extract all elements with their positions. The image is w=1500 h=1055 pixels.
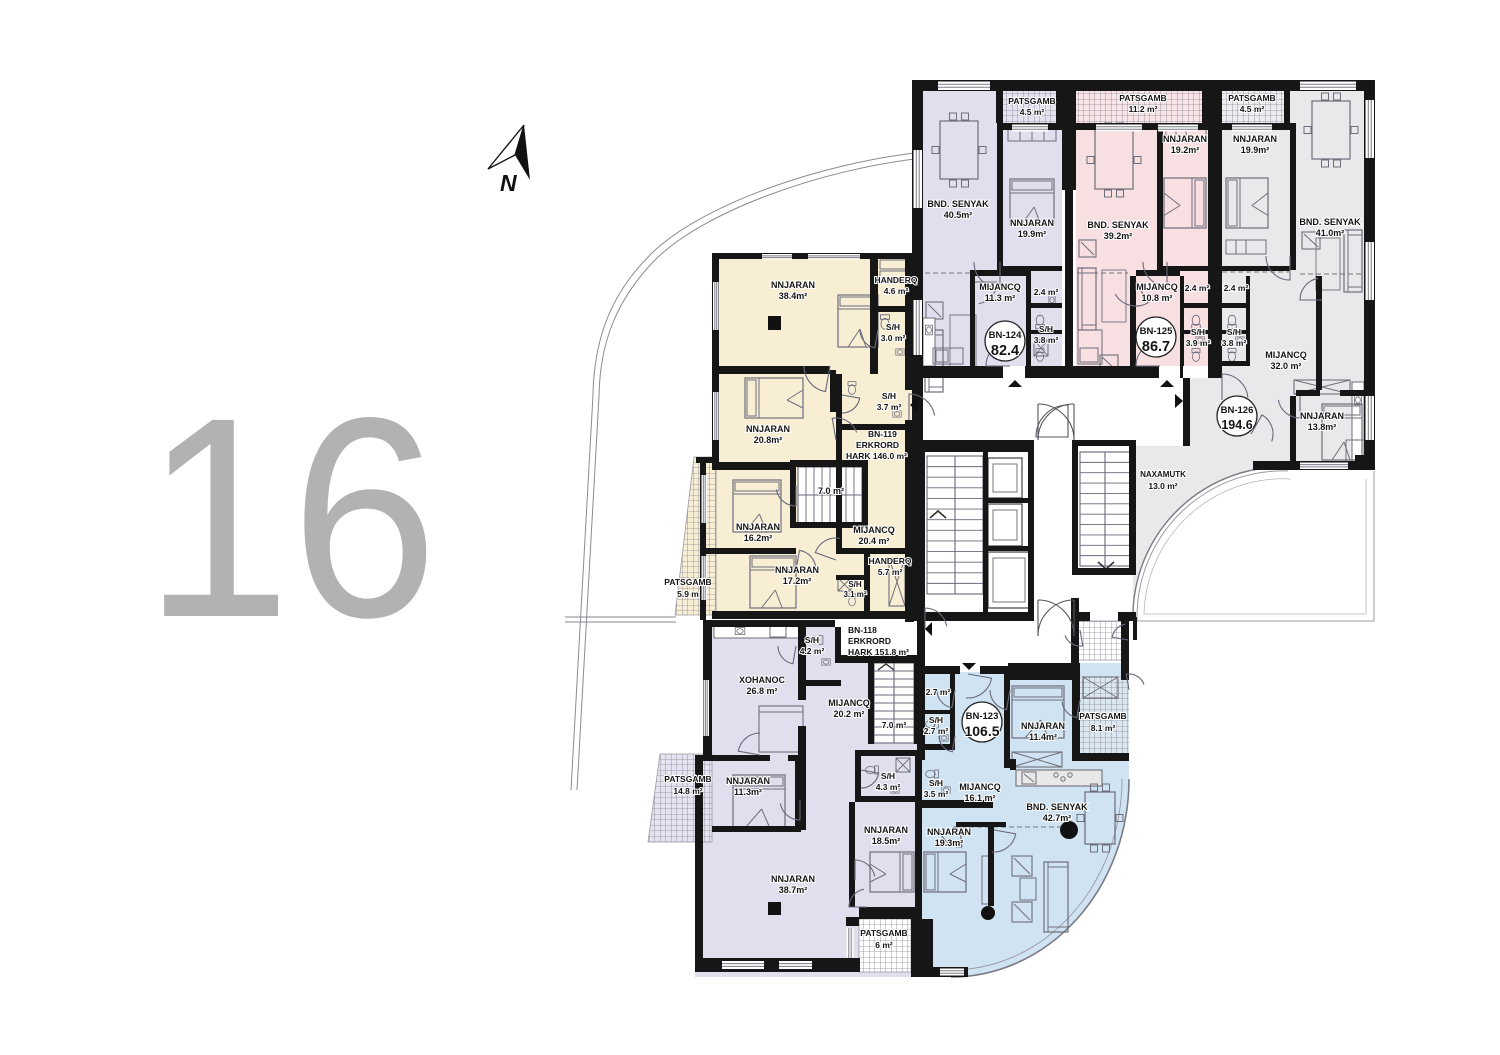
svg-text:PATSGAMB: PATSGAMB: [1119, 93, 1166, 103]
svg-text:5.7 m²: 5.7 m²: [878, 567, 903, 577]
svg-text:3.5 m²: 3.5 m²: [924, 789, 949, 799]
svg-text:MIJANCQ: MIJANCQ: [828, 698, 870, 708]
svg-text:PATSGAMB: PATSGAMB: [1079, 711, 1126, 721]
svg-text:13.8m²: 13.8m²: [1308, 422, 1337, 432]
svg-text:BN-125: BN-125: [1140, 326, 1173, 337]
svg-text:NNJARAN: NNJARAN: [736, 522, 780, 532]
svg-text:39.2m²: 39.2m²: [1104, 231, 1133, 241]
svg-text:3.0 m²: 3.0 m²: [881, 333, 906, 343]
svg-text:19.3m²: 19.3m²: [935, 838, 964, 848]
svg-text:4.6 m²: 4.6 m²: [884, 286, 909, 296]
svg-text:8.1 m²: 8.1 m²: [1091, 723, 1116, 733]
svg-text:14.8 m²: 14.8 m²: [673, 786, 702, 796]
svg-text:26.8 m²: 26.8 m²: [746, 686, 777, 696]
svg-text:NNJARAN: NNJARAN: [771, 280, 815, 290]
svg-text:10.8 m²: 10.8 m²: [1141, 293, 1172, 303]
svg-text:BN-124: BN-124: [989, 330, 1022, 341]
svg-text:NNJARAN: NNJARAN: [927, 827, 971, 837]
svg-text:NNJARAN: NNJARAN: [864, 825, 908, 835]
svg-text:NAXAMUTK: NAXAMUTK: [1140, 470, 1186, 479]
svg-text:2.4 m²: 2.4 m²: [1224, 283, 1249, 293]
svg-text:11.3 m²: 11.3 m²: [985, 293, 1016, 303]
svg-text:S/H: S/H: [929, 715, 943, 725]
svg-text:11.3m²: 11.3m²: [734, 787, 762, 797]
svg-text:BN-119: BN-119: [868, 429, 897, 439]
svg-text:BN-123: BN-123: [966, 711, 999, 722]
svg-text:S/H: S/H: [881, 771, 895, 781]
svg-text:MIJANCQ: MIJANCQ: [853, 525, 895, 535]
svg-text:3.7 m²: 3.7 m²: [877, 402, 902, 412]
svg-text:2.7 m²: 2.7 m²: [926, 687, 951, 697]
svg-text:ERKRORD: ERKRORD: [848, 636, 891, 646]
svg-text:38.7m²: 38.7m²: [779, 885, 808, 895]
svg-text:38.4m²: 38.4m²: [779, 291, 808, 301]
svg-text:20.4 m²: 20.4 m²: [858, 536, 889, 546]
svg-text:N: N: [500, 170, 517, 196]
svg-text:MIJANCQ: MIJANCQ: [1136, 282, 1178, 292]
svg-text:40.5m²: 40.5m²: [944, 210, 973, 220]
svg-text:S/H: S/H: [805, 635, 819, 645]
svg-text:PATSGAMB: PATSGAMB: [1008, 96, 1055, 106]
svg-text:18.5m²: 18.5m²: [872, 836, 901, 846]
svg-text:7.0 m²: 7.0 m²: [818, 486, 844, 496]
svg-text:HANDERQ: HANDERQ: [869, 556, 912, 566]
svg-text:19.2m²: 19.2m²: [1171, 145, 1200, 155]
svg-text:S/H: S/H: [882, 391, 896, 401]
svg-text:19.9m²: 19.9m²: [1018, 229, 1047, 239]
svg-text:BND. SENYAK: BND. SENYAK: [1299, 217, 1361, 227]
svg-text:S/H: S/H: [1039, 324, 1053, 334]
svg-text:ERKRORD: ERKRORD: [856, 440, 899, 450]
svg-text:NNJARAN: NNJARAN: [746, 424, 790, 434]
svg-text:7.0 m²: 7.0 m²: [882, 720, 907, 730]
svg-text:16.1 m²: 16.1 m²: [964, 793, 995, 803]
svg-text:42.7m²: 42.7m²: [1043, 813, 1072, 823]
svg-text:4.2 m²: 4.2 m²: [800, 646, 825, 656]
svg-text:S/H: S/H: [1191, 327, 1205, 337]
svg-text:13.0 m²: 13.0 m²: [1148, 481, 1177, 491]
svg-text:HARK 151.8 m²: HARK 151.8 m²: [848, 647, 909, 657]
svg-text:32.0 m²: 32.0 m²: [1270, 361, 1301, 371]
svg-text:HANDERQ: HANDERQ: [875, 275, 918, 285]
svg-text:106.5: 106.5: [964, 723, 999, 739]
svg-text:S/H: S/H: [929, 778, 943, 788]
svg-text:PATSGAMB: PATSGAMB: [664, 577, 711, 587]
svg-text:20.2 m²: 20.2 m²: [833, 709, 864, 719]
svg-text:NNJARAN: NNJARAN: [1163, 134, 1207, 144]
svg-text:3.9 m²: 3.9 m²: [1186, 338, 1211, 348]
svg-text:NNJARAN: NNJARAN: [1300, 411, 1344, 421]
svg-text:MIJANCQ: MIJANCQ: [979, 282, 1021, 292]
svg-text:16.2m²: 16.2m²: [744, 533, 773, 543]
svg-text:S/H: S/H: [848, 580, 862, 589]
svg-text:19.9m²: 19.9m²: [1241, 145, 1270, 155]
svg-text:BN-118: BN-118: [848, 625, 877, 635]
svg-text:PATSGAMB: PATSGAMB: [860, 928, 907, 938]
svg-text:2.7 m²: 2.7 m²: [924, 726, 949, 736]
svg-text:3.8 m²: 3.8 m²: [1222, 338, 1247, 348]
svg-text:MIJANCQ: MIJANCQ: [1265, 350, 1307, 360]
svg-text:4.5 m²: 4.5 m²: [1020, 107, 1045, 117]
svg-text:4.3 m²: 4.3 m²: [876, 782, 901, 792]
svg-text:2.4 m²: 2.4 m²: [1034, 287, 1059, 297]
svg-text:11.2 m²: 11.2 m²: [1129, 104, 1158, 114]
svg-text:NNJARAN: NNJARAN: [1010, 218, 1054, 228]
svg-text:5.9 m: 5.9 m: [677, 589, 699, 599]
svg-text:3.1 m²: 3.1 m²: [843, 590, 866, 599]
svg-text:NNJARAN: NNJARAN: [1233, 134, 1277, 144]
svg-text:41.0m²: 41.0m²: [1316, 228, 1345, 238]
svg-text:86.7: 86.7: [1142, 339, 1170, 355]
svg-text:BND. SENYAK: BND. SENYAK: [1026, 802, 1088, 812]
svg-text:S/H: S/H: [886, 322, 900, 332]
svg-text:NNJARAN: NNJARAN: [771, 874, 815, 884]
svg-text:BND. SENYAK: BND. SENYAK: [927, 199, 989, 209]
svg-text:NNJARAN: NNJARAN: [1021, 721, 1065, 731]
svg-text:82.4: 82.4: [991, 343, 1019, 359]
svg-text:20.8m²: 20.8m²: [754, 435, 783, 445]
svg-text:BN-126: BN-126: [1221, 405, 1254, 416]
svg-text:S/H: S/H: [1227, 327, 1241, 337]
svg-text:HARK 146.0 m²: HARK 146.0 m²: [846, 451, 907, 461]
svg-text:194.6: 194.6: [1221, 418, 1252, 432]
svg-text:11.4m²: 11.4m²: [1029, 732, 1057, 742]
svg-text:3.8 m²: 3.8 m²: [1034, 335, 1059, 345]
svg-text:BND. SENYAK: BND. SENYAK: [1087, 220, 1149, 230]
svg-text:6 m²: 6 m²: [875, 940, 893, 950]
svg-text:PATSGAMB: PATSGAMB: [664, 774, 711, 784]
svg-text:NNJARAN: NNJARAN: [726, 776, 770, 786]
svg-text:16: 16: [144, 359, 438, 677]
svg-text:2.4 m²: 2.4 m²: [1185, 283, 1210, 293]
svg-text:MIJANCQ: MIJANCQ: [959, 782, 1001, 792]
svg-text:NNJARAN: NNJARAN: [775, 565, 819, 575]
svg-text:PATSGAMB: PATSGAMB: [1228, 93, 1275, 103]
svg-text:17.2m²: 17.2m²: [783, 576, 812, 586]
svg-text:4.5 m²: 4.5 m²: [1240, 104, 1265, 114]
svg-text:XOHANOC: XOHANOC: [739, 675, 786, 685]
